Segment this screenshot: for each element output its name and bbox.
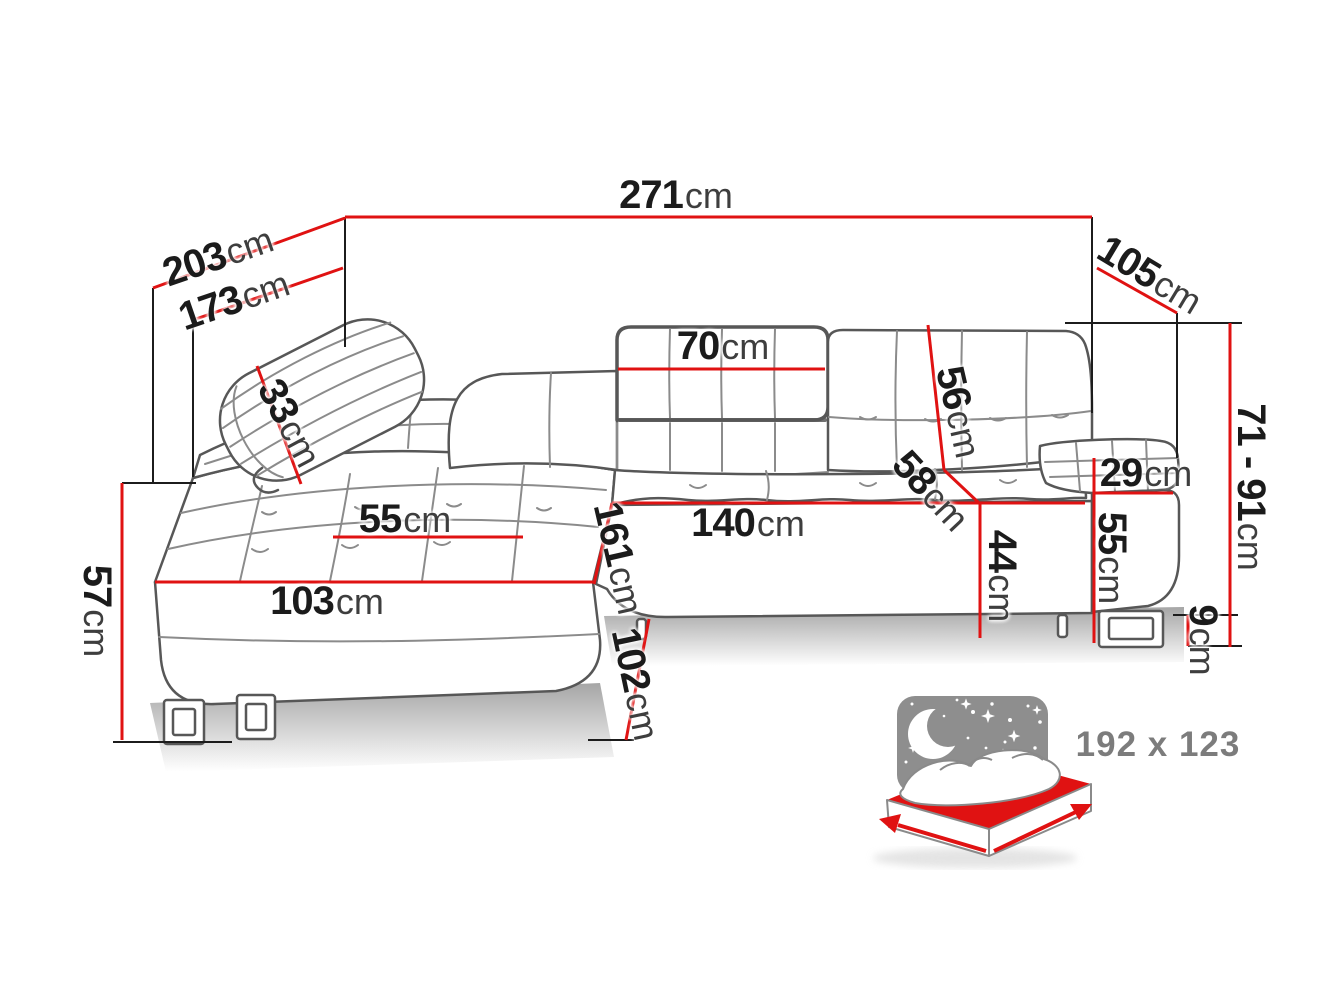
- dim-label-seat-width: 140cm: [691, 503, 805, 543]
- dim-label-headrest-width: 70cm: [677, 326, 770, 366]
- sleep-function-icon: [879, 696, 1092, 856]
- sofa-technical-drawing: [0, 0, 1326, 994]
- dim-label-armrest-width: 29cm: [1100, 453, 1193, 493]
- dim-label-chaise-front: 103cm: [270, 581, 384, 621]
- sleep-area-size-label: 192 x 123: [1076, 725, 1241, 765]
- dim-label-total-width: 271cm: [619, 175, 733, 215]
- dim-label-height-range: 71 - 91cm: [1231, 403, 1271, 571]
- dim-label-chaise-height: 57cm: [77, 565, 117, 658]
- diagram-canvas: 271cm 203cm 173cm 105cm 71 - 91cm 70cm 3…: [0, 0, 1326, 994]
- dim-label-seat-height: 44cm: [982, 530, 1022, 623]
- dim-label-leg-height: 9cm: [1183, 604, 1223, 675]
- dim-label-chaise-seat-width: 55cm: [359, 499, 452, 539]
- dim-label-armrest-front-height: 55cm: [1092, 512, 1132, 605]
- backrest-left: [449, 371, 617, 470]
